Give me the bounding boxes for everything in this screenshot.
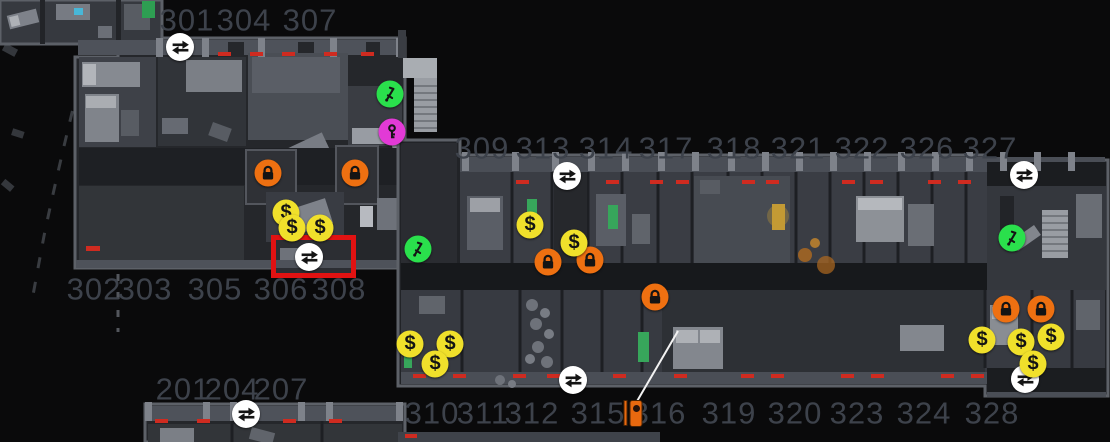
map-canvas[interactable]: 3013043073093133143173183213223263273023… <box>0 0 1110 442</box>
room-label-322: 322 <box>835 133 890 164</box>
room-label-302: 302 <box>67 274 122 305</box>
lock-icon[interactable] <box>642 284 669 311</box>
room-label-313: 313 <box>516 133 571 164</box>
room-label-307: 307 <box>283 5 338 36</box>
room-label-301: 301 <box>160 5 215 36</box>
lever-icon[interactable] <box>377 81 404 108</box>
room-label-321: 321 <box>771 133 826 164</box>
exchange-icon[interactable] <box>553 162 581 190</box>
room-label-315: 315 <box>571 398 626 429</box>
room-label-324: 324 <box>897 398 952 429</box>
second-floor-fragment <box>398 432 660 442</box>
lock-icon[interactable] <box>342 160 369 187</box>
money-icon[interactable]: $ <box>422 351 449 378</box>
room-label-303: 303 <box>118 274 173 305</box>
lock-icon[interactable] <box>255 160 282 187</box>
door-icon[interactable] <box>623 399 644 427</box>
room-label-311: 311 <box>457 398 509 429</box>
top-left-rooms <box>0 0 162 44</box>
room-label-327: 327 <box>963 133 1018 164</box>
room-label-308: 308 <box>312 274 367 305</box>
second-floor-wing <box>145 402 405 442</box>
room-label-328: 328 <box>965 398 1020 429</box>
exchange-icon[interactable] <box>166 33 194 61</box>
room-label-306: 306 <box>254 274 309 305</box>
money-icon[interactable]: $ <box>397 331 424 358</box>
main-building <box>398 140 1108 397</box>
money-icon[interactable]: $ <box>517 212 544 239</box>
lock-icon[interactable] <box>1028 296 1055 323</box>
room-label-320: 320 <box>768 398 823 429</box>
exchange-icon[interactable] <box>232 400 260 428</box>
room-label-323: 323 <box>830 398 885 429</box>
room-label-207: 207 <box>254 374 309 405</box>
room-label-312: 312 <box>505 398 560 429</box>
room-label-204: 204 <box>205 374 260 405</box>
highlighted-exchange-icon[interactable] <box>295 243 323 271</box>
money-icon[interactable]: $ <box>1020 351 1047 378</box>
room-label-326: 326 <box>900 133 955 164</box>
money-icon[interactable]: $ <box>279 215 306 242</box>
money-icon[interactable]: $ <box>1038 324 1065 351</box>
lever-icon[interactable] <box>999 225 1026 252</box>
money-icon[interactable]: $ <box>969 327 996 354</box>
room-label-314: 314 <box>579 133 634 164</box>
money-icon[interactable]: $ <box>307 215 334 242</box>
room-label-318: 318 <box>707 133 762 164</box>
room-label-305: 305 <box>188 274 243 305</box>
lever-icon[interactable] <box>405 236 432 263</box>
exchange-icon[interactable] <box>559 366 587 394</box>
room-label-317: 317 <box>639 133 694 164</box>
room-label-310: 310 <box>405 398 460 429</box>
room-label-309: 309 <box>455 133 510 164</box>
money-icon[interactable]: $ <box>561 230 588 257</box>
lock-icon[interactable] <box>993 296 1020 323</box>
room-label-304: 304 <box>217 5 272 36</box>
key-icon[interactable] <box>379 119 406 146</box>
lock-icon[interactable] <box>535 249 562 276</box>
west-wing-building <box>75 38 405 276</box>
exchange-icon[interactable] <box>1010 161 1038 189</box>
room-label-201: 201 <box>156 374 211 405</box>
room-label-319: 319 <box>702 398 757 429</box>
